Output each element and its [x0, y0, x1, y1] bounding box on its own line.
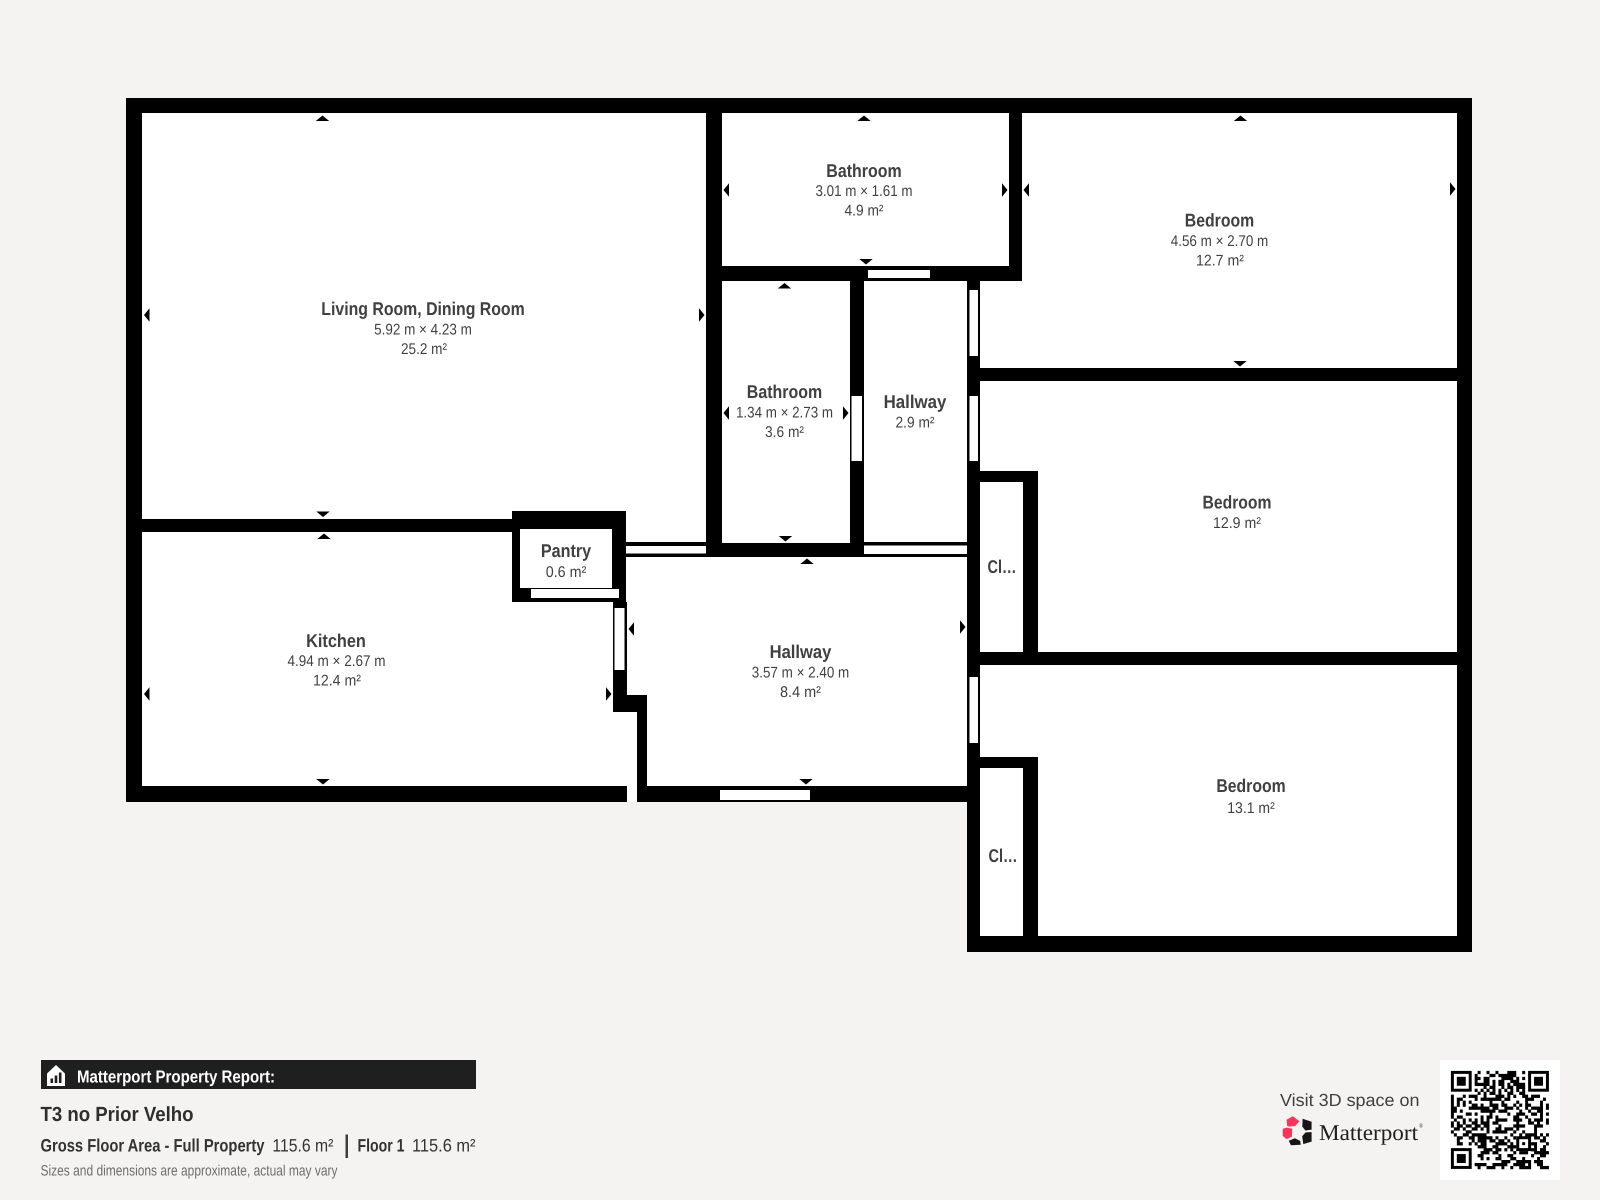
svg-text:25.2 m²: 25.2 m² [401, 341, 447, 358]
svg-text:Pantry: Pantry [541, 540, 592, 561]
svg-text:Matterport Property Report:: Matterport Property Report: [77, 1067, 275, 1087]
svg-text:Visit 3D space on: Visit 3D space on [1280, 1090, 1420, 1110]
svg-text:Hallway: Hallway [770, 641, 832, 662]
svg-text:13.1 m²: 13.1 m² [1227, 800, 1275, 817]
svg-text:115.6 m²: 115.6 m² [412, 1136, 476, 1156]
svg-text:12.9 m²: 12.9 m² [1213, 515, 1261, 532]
svg-text:5.92 m × 4.23 m: 5.92 m × 4.23 m [374, 322, 472, 339]
svg-text:Bathroom: Bathroom [747, 381, 822, 402]
svg-text:Bathroom: Bathroom [826, 160, 901, 181]
svg-text:Gross Floor Area - Full Proper: Gross Floor Area - Full Property [41, 1136, 265, 1156]
svg-text:8.4 m²: 8.4 m² [780, 684, 821, 701]
svg-text:4.9 m²: 4.9 m² [845, 203, 884, 220]
svg-text:®: ® [1419, 1124, 1424, 1130]
svg-text:12.4 m²: 12.4 m² [313, 673, 361, 690]
svg-text:Floor 1: Floor 1 [358, 1136, 405, 1156]
svg-text:Cl…: Cl… [989, 845, 1018, 866]
svg-text:2.9 m²: 2.9 m² [896, 415, 935, 432]
svg-text:115.6 m²: 115.6 m² [272, 1136, 333, 1156]
svg-text:Hallway: Hallway [884, 391, 947, 412]
svg-text:T3 no Prior Velho: T3 no Prior Velho [41, 1103, 194, 1126]
svg-text:Cl…: Cl… [988, 556, 1017, 577]
svg-text:Sizes and dimensions are appro: Sizes and dimensions are approximate, ac… [41, 1163, 338, 1180]
svg-text:12.7 m²: 12.7 m² [1196, 253, 1244, 270]
svg-text:1.34 m × 2.73 m: 1.34 m × 2.73 m [736, 405, 833, 422]
svg-text:4.56 m × 2.70 m: 4.56 m × 2.70 m [1171, 233, 1269, 250]
svg-text:Matterport: Matterport [1319, 1120, 1419, 1145]
svg-text:Bedroom: Bedroom [1185, 210, 1254, 231]
svg-text:Kitchen: Kitchen [306, 630, 366, 651]
svg-text:Bedroom: Bedroom [1203, 492, 1272, 513]
svg-text:3.6 m²: 3.6 m² [765, 424, 804, 441]
svg-text:0.6 m²: 0.6 m² [546, 564, 587, 581]
svg-text:Bedroom: Bedroom [1216, 775, 1285, 796]
svg-text:4.94 m × 2.67 m: 4.94 m × 2.67 m [288, 653, 386, 670]
svg-text:3.57 m × 2.40 m: 3.57 m × 2.40 m [752, 664, 850, 681]
svg-text:Living Room, Dining Room: Living Room, Dining Room [321, 298, 524, 319]
svg-text:3.01 m × 1.61 m: 3.01 m × 1.61 m [816, 183, 913, 200]
